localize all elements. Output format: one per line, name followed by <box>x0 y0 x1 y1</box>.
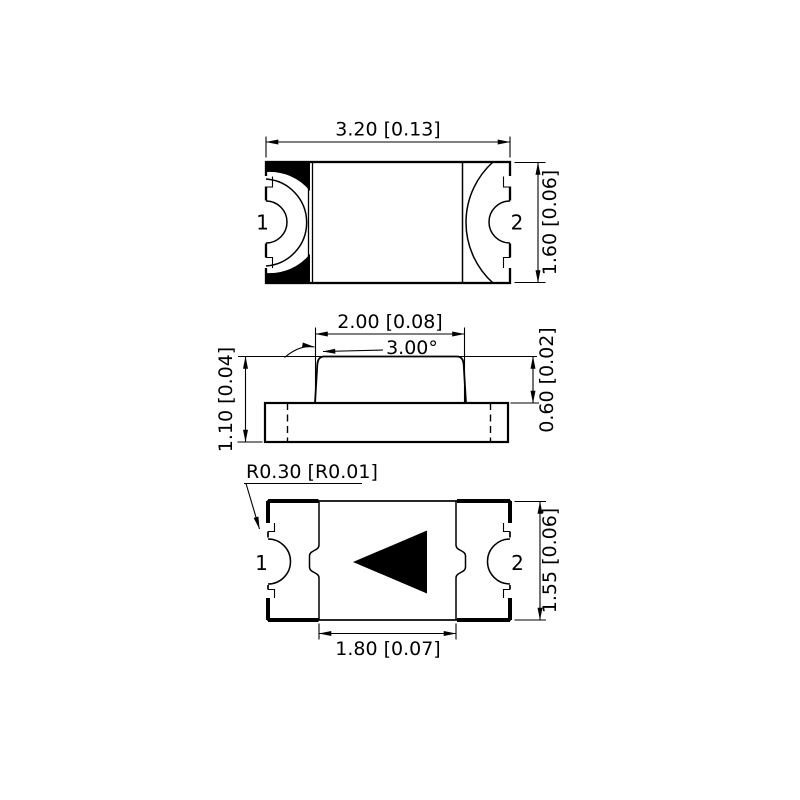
dim-draft-angle-label: 3.00° <box>386 337 438 359</box>
dim-body-top-width-label: 2.00 [0.08] <box>337 311 442 333</box>
dim-bottom-height-label: 1.55 [0.06] <box>539 508 561 613</box>
plating-gap <box>265 590 271 599</box>
side-view: 2.00 [0.08] 3.00° 1.10 [0.04] 0.60 [0.02… <box>215 311 558 452</box>
top-view: 1 2 3.20 [0.13] 1.60 [0.06] <box>256 119 561 284</box>
pin2-label-bottom-view: 2 <box>511 551 524 575</box>
dim-pad-width-label: 1.80 [0.07] <box>335 638 440 660</box>
dim-overall-width: 3.20 [0.13] <box>266 119 510 158</box>
callout-leader-line <box>246 484 260 530</box>
substrate-base <box>265 403 508 442</box>
plating-gap <box>263 176 269 187</box>
dim-pad-width: 1.80 [0.07] <box>319 624 456 661</box>
pin1-label-top-view: 1 <box>256 211 269 235</box>
dim-total-height: 1.10 [0.04] <box>215 347 263 452</box>
bottom-view: 1 2 R0.30 [R0.01] 1.55 [0.06] 1.80 [0.07… <box>244 461 561 660</box>
plating-gap <box>507 523 513 532</box>
plating-gap <box>508 258 514 269</box>
callout-corner-radius-label: R0.30 [R0.01] <box>246 461 378 483</box>
pin2-label-top-view: 2 <box>511 211 524 235</box>
angle-leader-line <box>323 350 383 352</box>
dim-body-height: 0.60 [0.02] <box>511 327 559 432</box>
dim-total-height-label: 1.10 [0.04] <box>215 347 237 452</box>
plating-gap <box>508 176 514 187</box>
package-drawing: 1 2 3.20 [0.13] 1.60 [0.06] 2.00 [0.08] <box>0 0 800 800</box>
plating-gap <box>265 523 271 532</box>
drawing-canvas: 1 2 3.20 [0.13] 1.60 [0.06] 2.00 [0.08] <box>0 0 800 800</box>
epoxy-body-profile <box>315 357 466 404</box>
dim-overall-width-label: 3.20 [0.13] <box>335 119 440 141</box>
pin1-label-bottom-view: 1 <box>255 551 268 575</box>
angle-arc-arrow <box>285 347 315 358</box>
dim-body-height-label: 0.60 [0.02] <box>536 327 558 432</box>
dim-overall-depth-label: 1.60 [0.06] <box>539 170 561 275</box>
plating-gap <box>507 590 513 599</box>
